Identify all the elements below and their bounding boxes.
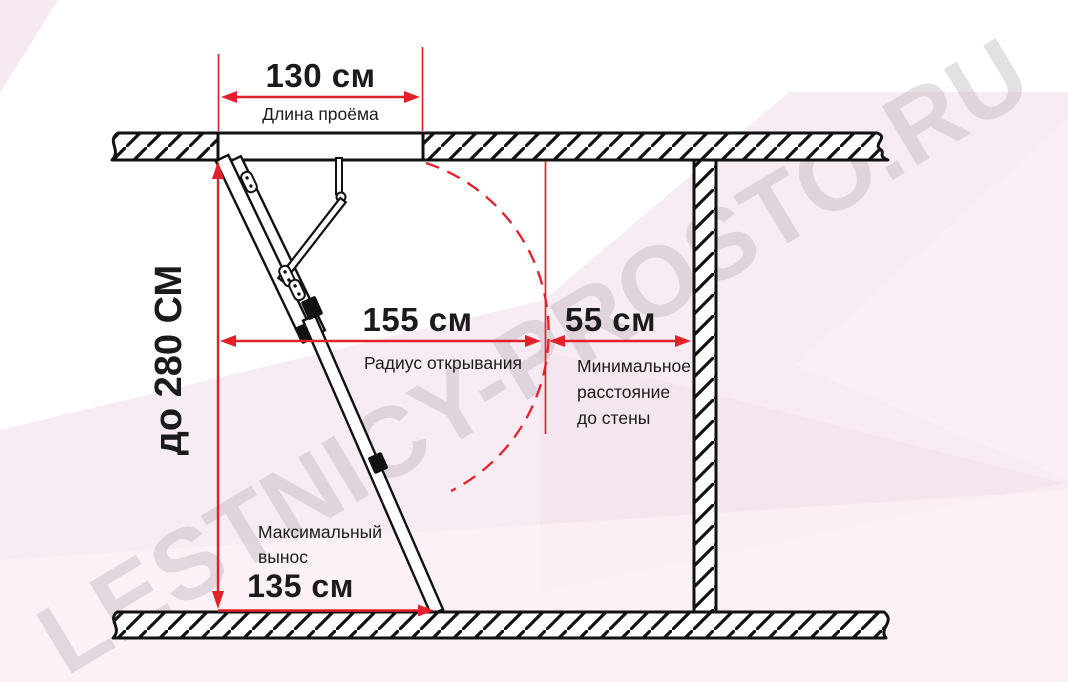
opening-frame xyxy=(218,133,423,160)
dimension-radius-label: Радиус открывания xyxy=(353,353,533,374)
dimension-wall-label: Минимальное расстояние до стены xyxy=(577,353,757,431)
dimension-wall-value: 55 см xyxy=(548,301,673,339)
arrowhead xyxy=(675,335,691,347)
hatch-door xyxy=(216,155,314,339)
dimension-opening-label: Длина проёма xyxy=(218,104,423,125)
attic-ladder-dimensions-diagram: LESTNICY-PROSTO.RU xyxy=(0,0,1068,682)
arrowhead xyxy=(212,591,224,609)
floor xyxy=(113,612,888,638)
dimension-opening-value: 130 см xyxy=(218,57,423,95)
arrowhead xyxy=(220,335,236,347)
dimension-extension-label: Максимальный вынос xyxy=(258,520,438,570)
arrowhead xyxy=(525,335,541,347)
dimension-radius-value: 155 см xyxy=(345,301,490,339)
ceiling-right xyxy=(423,133,888,160)
ceiling-left xyxy=(112,133,218,160)
dimension-extension-value: 135 см xyxy=(228,568,373,605)
dimension-height-value: до 280 СМ xyxy=(148,220,196,500)
strut-rod xyxy=(336,158,342,194)
